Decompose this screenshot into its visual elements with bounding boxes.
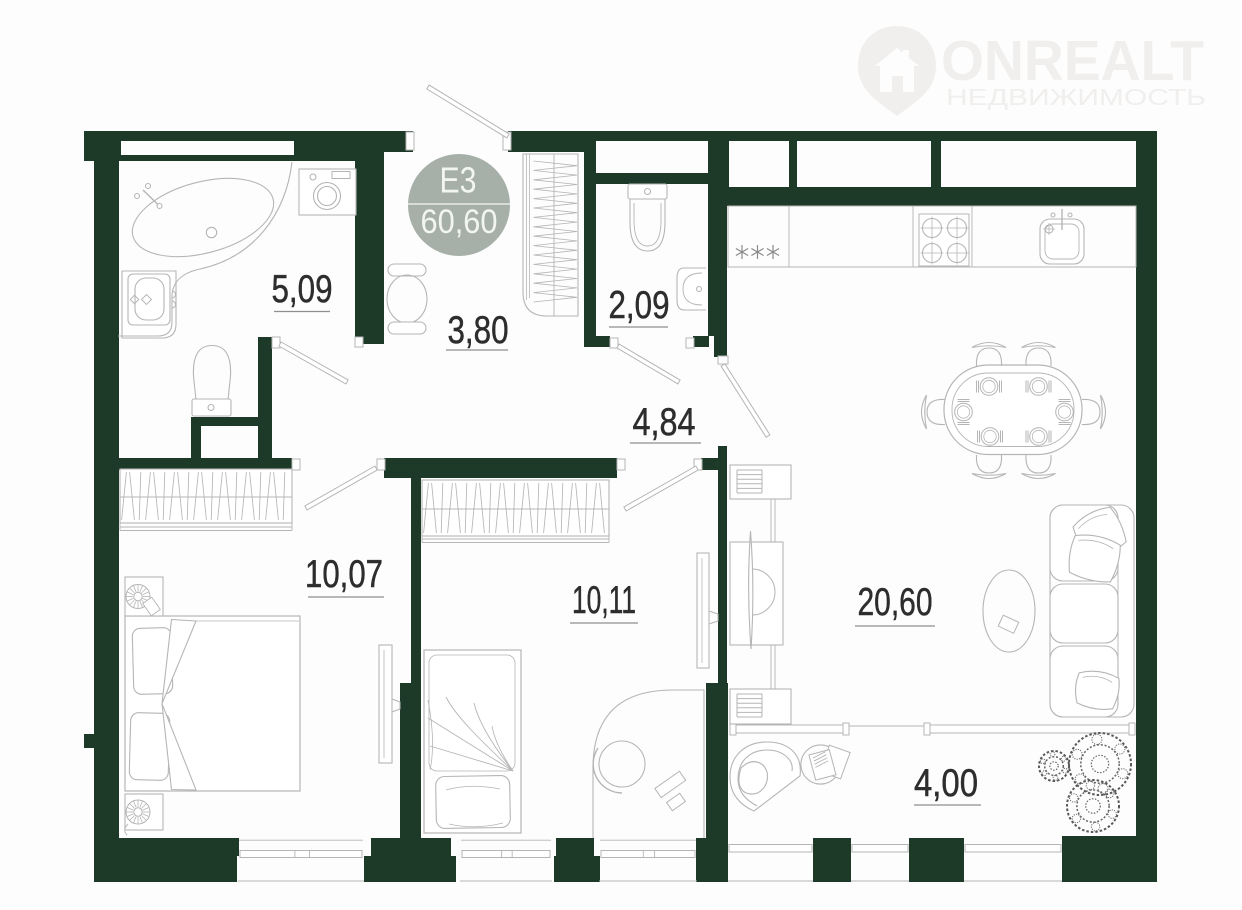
svg-text:3,80: 3,80 xyxy=(448,309,509,352)
svg-text:5,09: 5,09 xyxy=(272,268,333,311)
svg-text:Е3: Е3 xyxy=(440,160,477,201)
svg-text:2,09: 2,09 xyxy=(609,284,670,327)
svg-text:10,11: 10,11 xyxy=(572,579,636,622)
svg-text:4,84: 4,84 xyxy=(633,401,696,444)
svg-text:НЕДВИЖИМОСТЬ: НЕДВИЖИМОСТЬ xyxy=(946,84,1206,110)
svg-text:60,60: 60,60 xyxy=(421,203,498,241)
svg-text:4,00: 4,00 xyxy=(914,762,978,805)
svg-text:10,07: 10,07 xyxy=(305,553,383,596)
svg-text:20,60: 20,60 xyxy=(858,581,933,624)
